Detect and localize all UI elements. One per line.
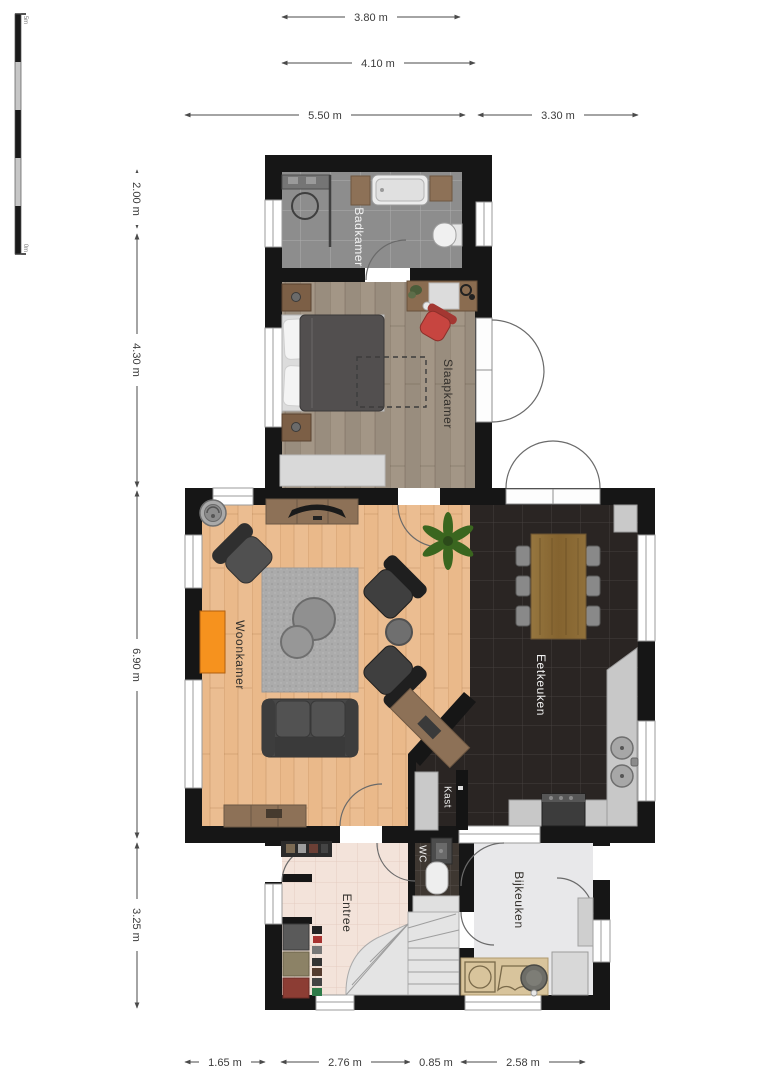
woonkamer-slaapkamer-door-opening: [398, 488, 440, 505]
radiator: [200, 611, 225, 673]
dim-bottom-276: 2.76 m: [328, 1057, 362, 1069]
window: [265, 328, 282, 427]
tv-cabinet: [266, 499, 358, 524]
toilet: [433, 223, 462, 247]
dining-chair: [516, 546, 530, 566]
room-label-eetkeuken: Eetkeuken: [534, 654, 548, 716]
stair-flight: [408, 912, 459, 995]
dim-bottom-085: 0.85 m: [419, 1057, 453, 1069]
room-label-badkamer: Badkamer: [352, 207, 366, 267]
faucet-icon: [631, 758, 638, 766]
room-label-slaapkamer: Slaapkamer: [441, 359, 455, 429]
badkamer-door-opening: [365, 268, 410, 282]
window: [459, 826, 540, 843]
dim-bottom-258: 2.58 m: [506, 1057, 540, 1069]
window: [476, 202, 492, 246]
window: [465, 995, 541, 1010]
coffee-table: [281, 626, 313, 658]
sideboard: [224, 805, 306, 827]
window: [265, 200, 282, 247]
bath-mat: [430, 176, 452, 201]
bijkeuken-cabinet: [578, 898, 593, 946]
dim-top-330: 3.30 m: [541, 110, 575, 122]
scale-top-label: 5m: [22, 16, 28, 24]
window: [185, 680, 202, 788]
front-door-opening: [265, 846, 282, 882]
coat-rack: [281, 841, 332, 857]
eetkeuken-french-doors: [506, 441, 600, 504]
dining-chair: [516, 606, 530, 626]
dim-bottom-165: 1.65 m: [208, 1057, 242, 1069]
shoes: [312, 926, 322, 996]
window: [316, 995, 354, 1010]
bath-mat: [351, 176, 370, 205]
dim-left-430: 4.30 m: [130, 343, 142, 377]
stove: [542, 794, 585, 826]
window: [593, 920, 610, 962]
fridge: [552, 952, 588, 995]
dim-top-550: 5.50 m: [308, 110, 342, 122]
dining-table: [531, 534, 586, 639]
scale-bottom-label: 0m: [22, 244, 28, 252]
room-label-entree: Entree: [340, 894, 354, 933]
desk: [407, 281, 477, 311]
window: [265, 884, 282, 924]
laundry-counter: [461, 958, 548, 996]
dining-chair: [586, 606, 600, 626]
dim-left-690: 6.90 m: [130, 648, 142, 682]
dim-left-200: 2.00 m: [130, 182, 142, 216]
window: [185, 535, 202, 588]
dim-top-380: 3.80 m: [354, 12, 388, 24]
window: [638, 535, 655, 641]
wc-toilet: [426, 862, 448, 894]
room-label-kast: Kast: [442, 786, 453, 808]
corner-cabinet: [614, 505, 637, 532]
dining-chair: [586, 576, 600, 596]
bathtub: [372, 175, 428, 205]
kast-cabinet: [415, 772, 438, 830]
closet-stub: [282, 917, 312, 924]
sofa: [262, 699, 358, 757]
back-door-opening: [593, 846, 610, 880]
kast-wardrobe: [456, 770, 468, 830]
dining-chair: [516, 576, 530, 596]
wc-sink: [431, 838, 452, 864]
entree-door-stub: [282, 874, 312, 882]
bedroom-mat: [280, 455, 385, 486]
room-label-wc: WC: [417, 845, 428, 863]
bed: [282, 315, 384, 411]
dining-chair: [586, 546, 600, 566]
side-table: [386, 619, 412, 645]
room-label-woonkamer: Woonkamer: [233, 620, 247, 690]
floor-plan: 5m 0m 3.80 m 4.10 m 5.50 m 3.30 m 2.00 m…: [0, 0, 764, 1080]
room-label-bijkeuken: Bijkeuken: [512, 871, 526, 928]
wood-stove: [200, 500, 226, 526]
dim-left-325: 3.25 m: [130, 908, 142, 942]
woonkamer-entree-door-opening: [340, 826, 382, 843]
slaapkamer-french-doors: [476, 318, 544, 422]
stair-landing: [413, 896, 459, 912]
window: [638, 721, 655, 801]
dim-top-410: 4.10 m: [361, 58, 395, 70]
scale-bar: 5m 0m: [15, 14, 28, 254]
